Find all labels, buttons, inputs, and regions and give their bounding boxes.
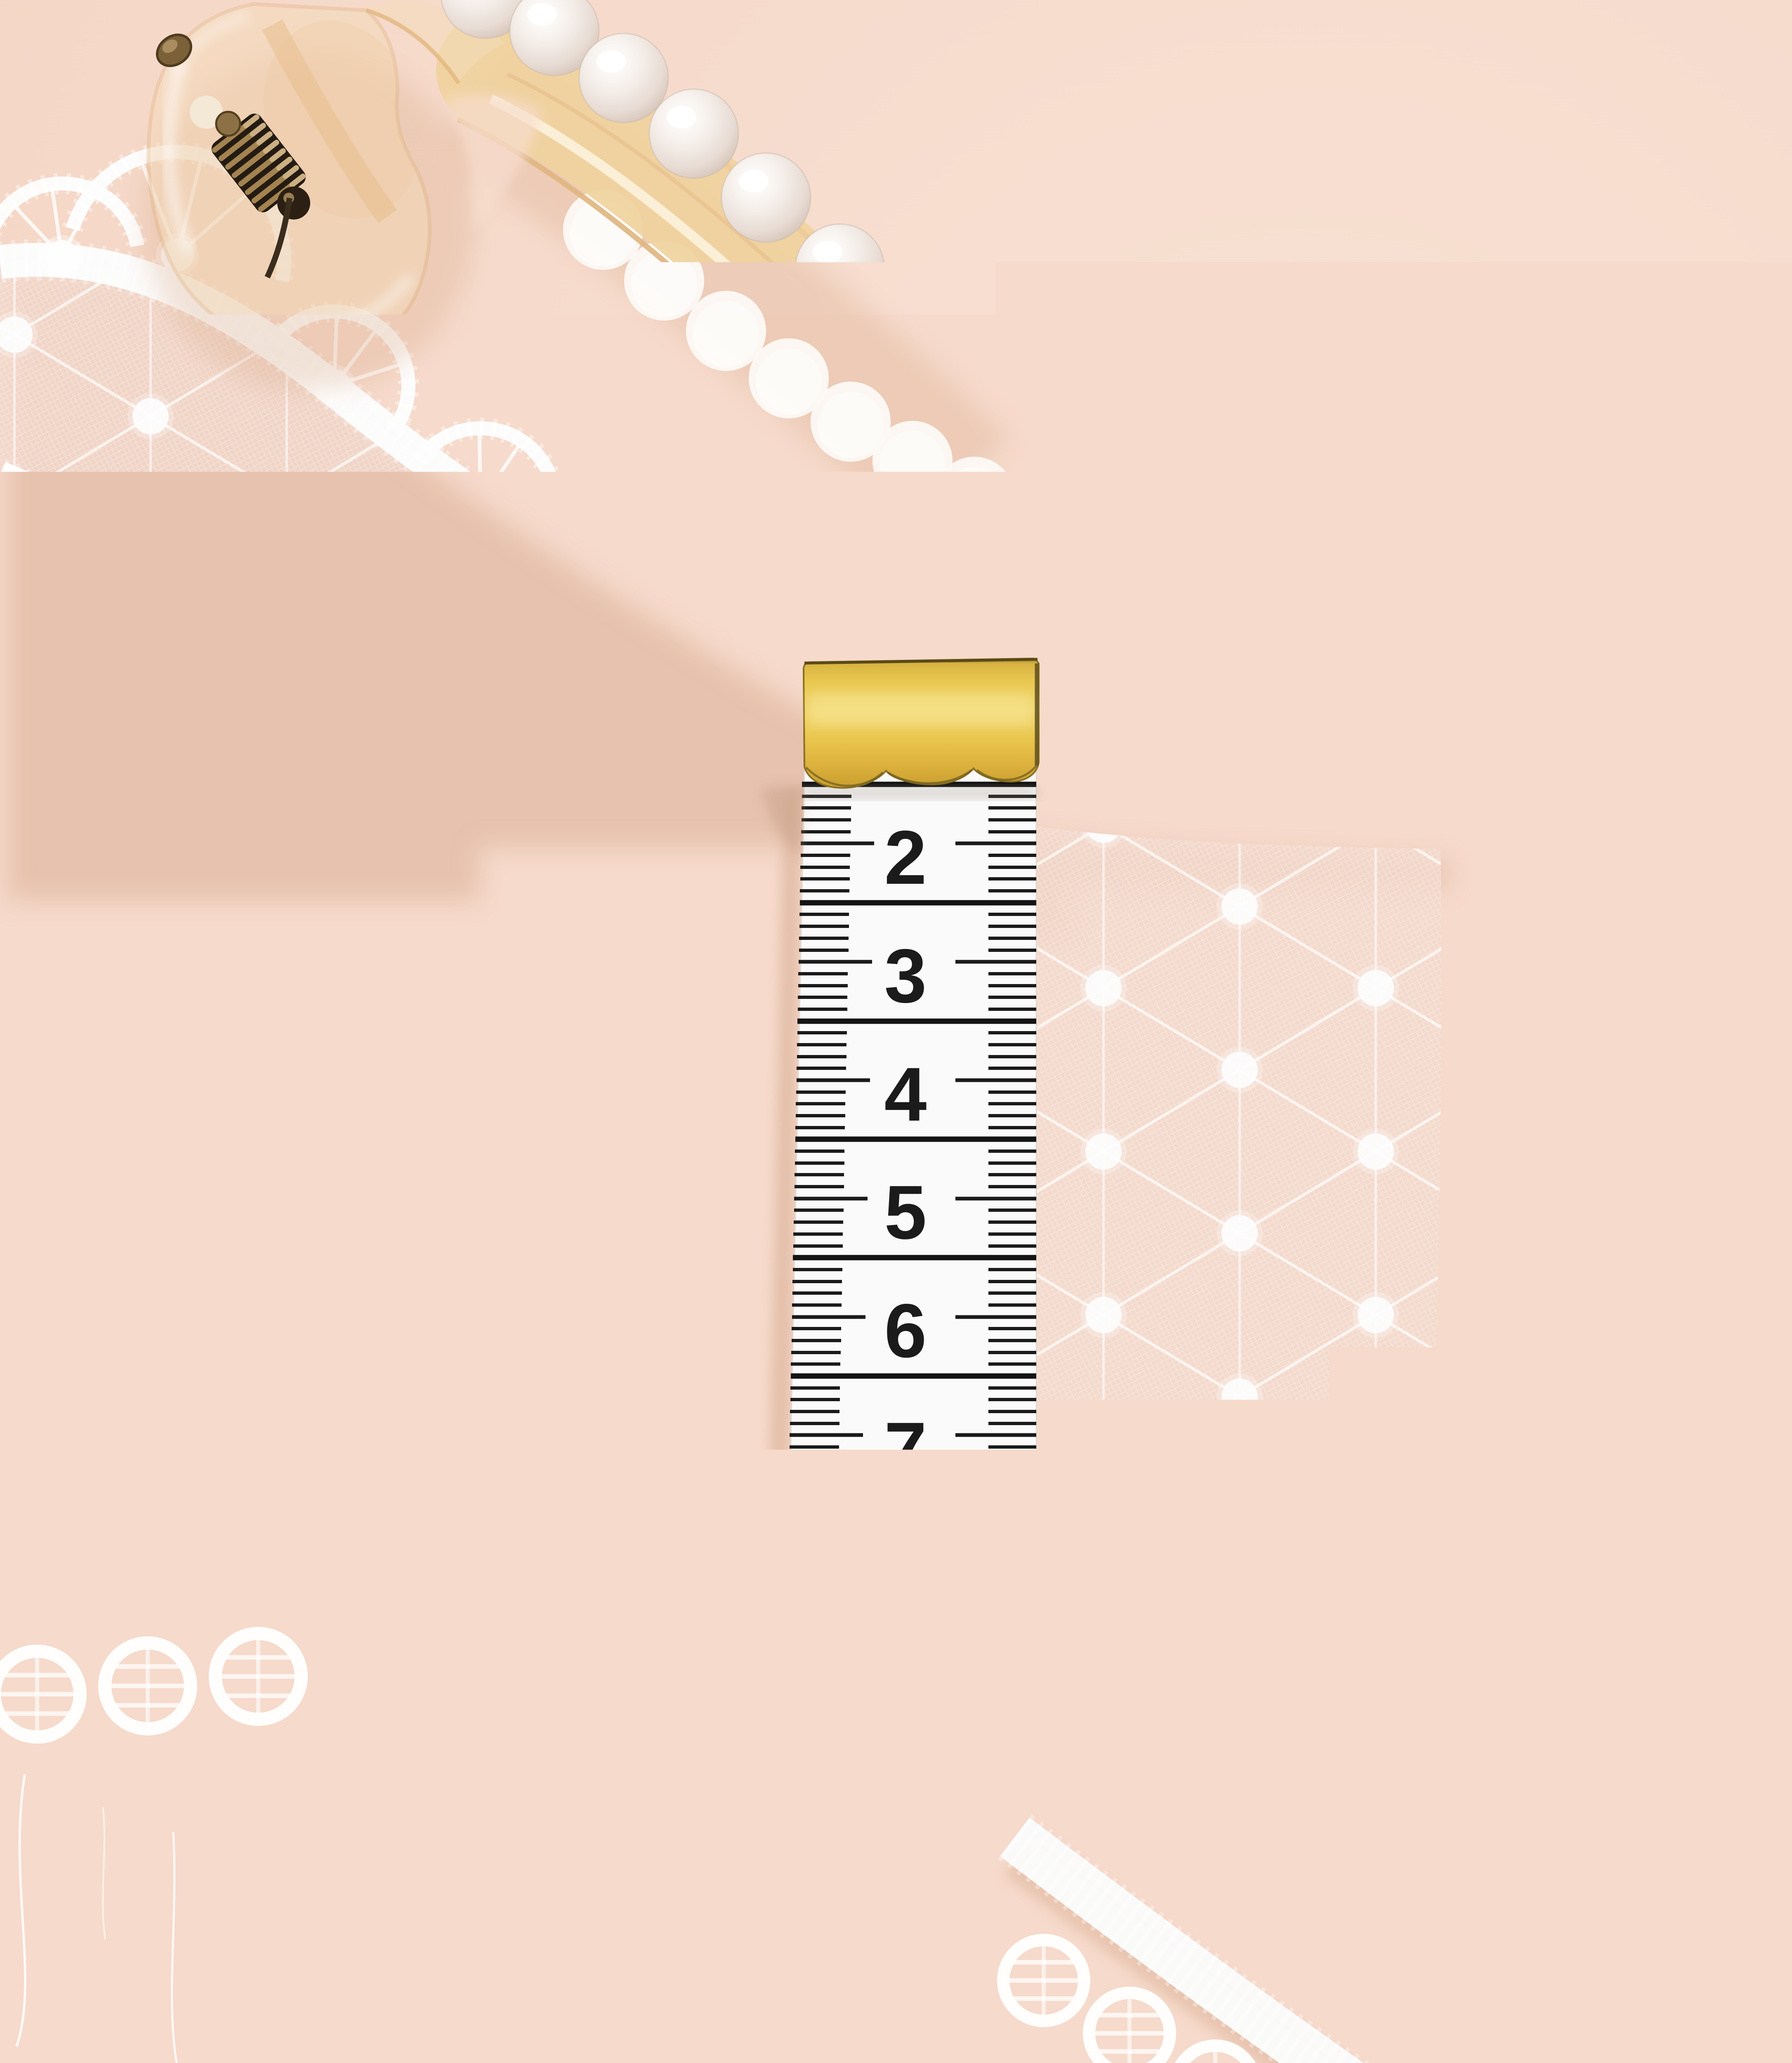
svg-text:3: 3 (884, 934, 927, 1019)
svg-text:7: 7 (884, 1407, 927, 1492)
svg-text:10: 10 (863, 1762, 948, 1847)
svg-text:11: 11 (865, 1880, 946, 1965)
svg-text:12: 12 (863, 1999, 948, 2063)
svg-text:6: 6 (884, 1289, 927, 1374)
svg-text:8: 8 (884, 1525, 927, 1610)
svg-text:4: 4 (884, 1052, 927, 1137)
svg-text:9: 9 (884, 1644, 927, 1729)
svg-text:2: 2 (884, 815, 927, 900)
svg-text:5: 5 (884, 1170, 927, 1255)
